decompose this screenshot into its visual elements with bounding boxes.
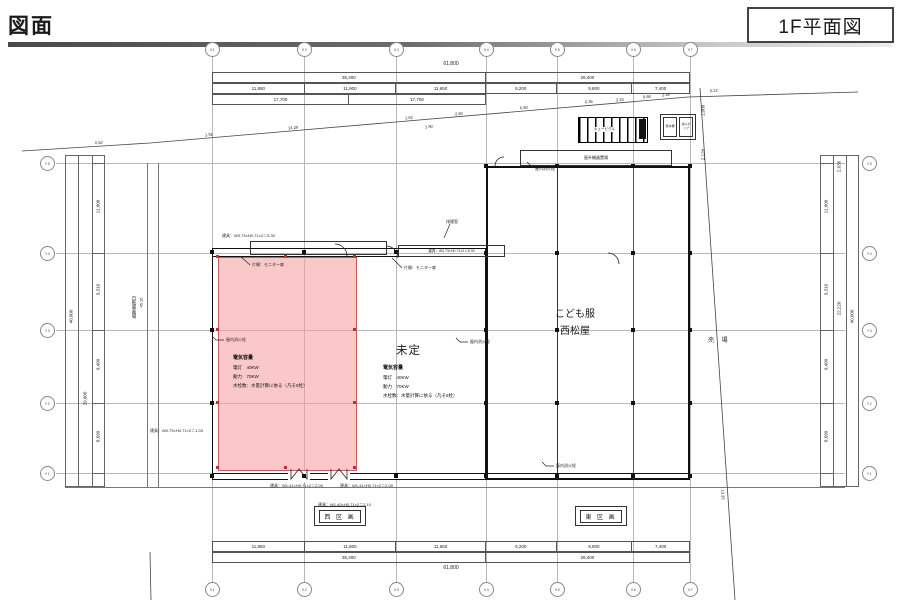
bubble-label: Y1: [45, 472, 50, 476]
annotation-door-spec: 建具：W1.41×H0.71×2＝2.00: [340, 483, 393, 489]
tenant-name-line2: 西松屋: [538, 323, 612, 340]
dim-right-group: 22,220: [837, 284, 842, 334]
grid-bubble-x4-top: X4: [479, 42, 494, 57]
dim-cell: 26,400: [486, 553, 689, 562]
bubble-label: X2: [302, 48, 307, 52]
boundary-number: 6.45: [585, 99, 593, 105]
bubble-label: X1: [210, 588, 215, 592]
annotation-door-spec: 建具：W1.41×H0.71×2＝2.00: [270, 483, 323, 489]
dim-left-line-1: [78, 155, 79, 487]
grid-bubble-y1-right: Y1: [862, 466, 877, 481]
spec-power: 動力 70KW: [383, 382, 513, 391]
spec-water: 水栓数：水量計算に依る（凡そ5栓）: [233, 381, 363, 390]
grid-bubble-x5-bottom: X5: [550, 582, 565, 597]
grid-bubble-x3-top: X3: [389, 42, 404, 57]
dim-right-line-1: [833, 155, 834, 487]
tick: [92, 403, 105, 404]
boundary-number: 2.28: [662, 92, 670, 98]
boundary-number: 1.91: [205, 132, 213, 138]
tick: [820, 163, 833, 164]
leader-lines: [212, 162, 554, 466]
bubble-label: X3: [394, 588, 399, 592]
dim-left-span: 9,310: [96, 265, 101, 315]
annotation-hydrant: 屋内消火栓: [226, 337, 246, 343]
boundary-number-right: 13.33: [720, 489, 726, 499]
bubble-label: Y2: [867, 402, 872, 406]
grid-bubble-x2-top: X2: [297, 42, 312, 57]
tick: [820, 473, 833, 474]
grid-bubble-x4-bottom: X4: [479, 582, 494, 597]
grid-bubble-y3-right: Y3: [862, 323, 877, 338]
dim-cell: 11,900: [305, 84, 397, 93]
grid-bubble-x7-top: X7: [683, 42, 698, 57]
spec-light: 電灯 40KW: [383, 373, 513, 382]
dim-left-total: 40,000: [69, 292, 74, 342]
bubble-label: X4: [484, 588, 489, 592]
bubble-label: X3: [394, 48, 399, 52]
grid-bubble-x6-bottom: X6: [626, 582, 641, 597]
dim-left-span: 8,690: [96, 412, 101, 462]
site-boundary-lines: [22, 88, 858, 600]
boundary-number: 1.90: [425, 124, 433, 130]
section-box-west: 西 区 画: [314, 506, 366, 526]
bubble-label: X7: [688, 588, 693, 592]
tick: [92, 253, 105, 254]
dim-top-spans: 11,850 11,900 11,650 9,200 9,800 7,400: [212, 83, 690, 94]
grid-bubble-y5-right: Y5: [862, 156, 877, 171]
dim-cell: 17,700: [213, 95, 349, 104]
annotation-monitor-door: 片開：モニター扉: [404, 265, 436, 271]
dim-cell: 9,200: [486, 84, 557, 93]
boundary-number: 14.29: [288, 125, 298, 131]
dim-cell: 7,400: [632, 542, 689, 551]
dim-cell: 9,800: [557, 542, 633, 551]
bubble-label: Y5: [45, 162, 50, 166]
annotation-hydrant: 屋内消火栓: [470, 339, 490, 345]
grid-bubble-x3-bottom: X3: [389, 582, 404, 597]
tick: [820, 330, 833, 331]
spec-block-highlight: 電気容量 電灯 40KW 動力 70KW 水栓数：水量計算に依る（凡そ5栓）: [233, 354, 363, 390]
spec-light: 電灯 40KW: [233, 363, 363, 372]
boundary-number: 5.68: [643, 94, 651, 100]
tenant-name-line1: こども服: [538, 306, 612, 323]
grid-bubble-y4-right: Y4: [862, 246, 877, 261]
bubble-label: Y4: [867, 252, 872, 256]
dim-right-span: 8,690: [824, 412, 829, 462]
boundary-number: 0.52: [95, 140, 103, 146]
bubble-label: X7: [688, 48, 693, 52]
annotation-hydrant: 屋内消火栓: [556, 463, 576, 469]
dim-cell: 9,800: [557, 84, 633, 93]
bubble-label: X1: [210, 48, 215, 52]
bubble-label: Y5: [867, 162, 872, 166]
dim-cell: 35,400: [213, 73, 486, 82]
bubble-label: Y1: [867, 472, 872, 476]
grid-bubble-y3-left: Y3: [40, 323, 55, 338]
dim-cell: 7,400: [632, 84, 689, 93]
dim-cell: 11,650: [396, 84, 486, 93]
drawing-sheet: 図面 1F平面図 屋外機器置場 建具：W3.73×H0.71×2＝5.30 キュ…: [0, 0, 900, 600]
annotation-door-spec: 建具：W3.73×H0.71×2＝5.30: [222, 233, 275, 239]
spec-power: 動力 70KW: [233, 372, 363, 381]
dim-left-span: 9,400: [96, 340, 101, 390]
dim-cell: 11,850: [213, 542, 305, 551]
room-nishimatsuya-label: こども服 西松屋: [538, 306, 612, 340]
dim-right-line-2: [846, 155, 847, 487]
dim-right-offset: 2,636: [837, 142, 842, 192]
grid-bubble-y5-left: Y5: [40, 156, 55, 171]
annotation-monitor-door: 片開：モニター扉: [252, 262, 284, 268]
annotation-bike-number: 45.16: [139, 278, 144, 328]
dim-right-span: 11,000: [824, 182, 829, 232]
dim-right-span: 9,400: [824, 340, 829, 390]
dim-bottom-spans: 11,850 11,800 11,650 9,200 9,800 7,400: [212, 541, 690, 552]
boundary-number: 0.22: [710, 88, 718, 93]
tick: [820, 253, 833, 254]
boundary-number: 1.62: [405, 115, 413, 121]
boundary-number: 2.50: [455, 111, 463, 117]
spec-block-undecided: 電気容量 電灯 40KW 動力 70KW 水栓数：水量計算に依る（凡そ5栓）: [383, 364, 513, 400]
annotation-hydrant: 屋内消火栓: [535, 166, 555, 172]
section-west-label: 西 区 画: [319, 510, 360, 523]
annotation-smoke-window: 排煙窓: [446, 219, 458, 225]
grid-bubble-x5-top: X5: [550, 42, 565, 57]
dim-left-line-2: [92, 155, 93, 487]
grid-bubble-y4-left: Y4: [40, 246, 55, 261]
bubble-label: Y2: [45, 402, 50, 406]
dim-cell: 9,200: [486, 542, 557, 551]
dim-cell: 11,850: [213, 84, 305, 93]
boundary-number: 2.24: [616, 97, 624, 103]
dim-cell: 35,400: [213, 553, 486, 562]
dim-bottom-groups: 35,400 26,400: [212, 552, 690, 563]
dim-cell: 11,800: [305, 542, 397, 551]
dim-cell: 17,700: [349, 95, 485, 104]
boundary-number: 6.50: [520, 105, 528, 111]
spec-title: 電気容量: [233, 354, 363, 363]
grid-bubble-x1-bottom: X1: [205, 582, 220, 597]
dim-cell: 26,400: [486, 73, 689, 82]
column-markers: [210, 164, 692, 478]
dim-top-groups: 35,400 26,400: [212, 72, 690, 83]
annotation-door-spec: 建具：W0.73×H0.71×2＝1.03: [150, 428, 203, 434]
tick: [92, 163, 105, 164]
bubble-label: X4: [484, 48, 489, 52]
grid-bubble-x2-bottom: X2: [297, 582, 312, 597]
tick: [820, 403, 833, 404]
bubble-label: Y4: [45, 252, 50, 256]
grid-bubble-y2-left: Y2: [40, 396, 55, 411]
spec-title: 電気容量: [383, 364, 513, 373]
tick: [92, 473, 105, 474]
dim-left-group: 20,000: [83, 374, 88, 424]
dim-left-span: 11,000: [96, 182, 101, 232]
bubble-label: X2: [302, 588, 307, 592]
sales-floor-label: 売 場: [708, 335, 731, 344]
annotation-bike-parking: 自転車置場: [131, 296, 137, 319]
section-box-east: 東 区 画: [575, 506, 627, 526]
grid-bubble-y1-left: Y1: [40, 466, 55, 481]
bubble-label: X5: [555, 48, 560, 52]
dim-right-span: 9,310: [824, 265, 829, 315]
grid-bubble-x7-bottom: X7: [683, 582, 698, 597]
bubble-label: Y3: [867, 329, 872, 333]
grid-bubble-x1-top: X1: [205, 42, 220, 57]
room-undecided-label: 未定: [396, 342, 421, 358]
dim-right-total: 40,000: [850, 292, 855, 342]
bubble-label: X6: [631, 588, 636, 592]
grid-bubble-x6-top: X6: [626, 42, 641, 57]
annotation-door-spec: 建具：W1.40×H0.71×2＝2.10: [318, 502, 371, 508]
spec-water: 水栓数：水量計算に依る（凡そ5栓）: [383, 391, 513, 400]
bubble-label: X5: [555, 588, 560, 592]
dim-bottom-total: 61,800: [212, 565, 690, 571]
grid-bubble-y2-right: Y2: [862, 396, 877, 411]
bubble-label: X6: [631, 48, 636, 52]
dim-misc-v2: 2,120: [701, 130, 706, 180]
dim-top-sub: 17,700 17,700: [212, 94, 486, 105]
bubble-label: Y3: [45, 329, 50, 333]
section-east-label: 東 区 画: [580, 510, 621, 523]
dim-cell: 11,650: [396, 542, 486, 551]
tick: [92, 330, 105, 331]
dim-misc-v1: 1,000: [701, 86, 706, 136]
dim-top-total: 61,800: [212, 61, 690, 67]
